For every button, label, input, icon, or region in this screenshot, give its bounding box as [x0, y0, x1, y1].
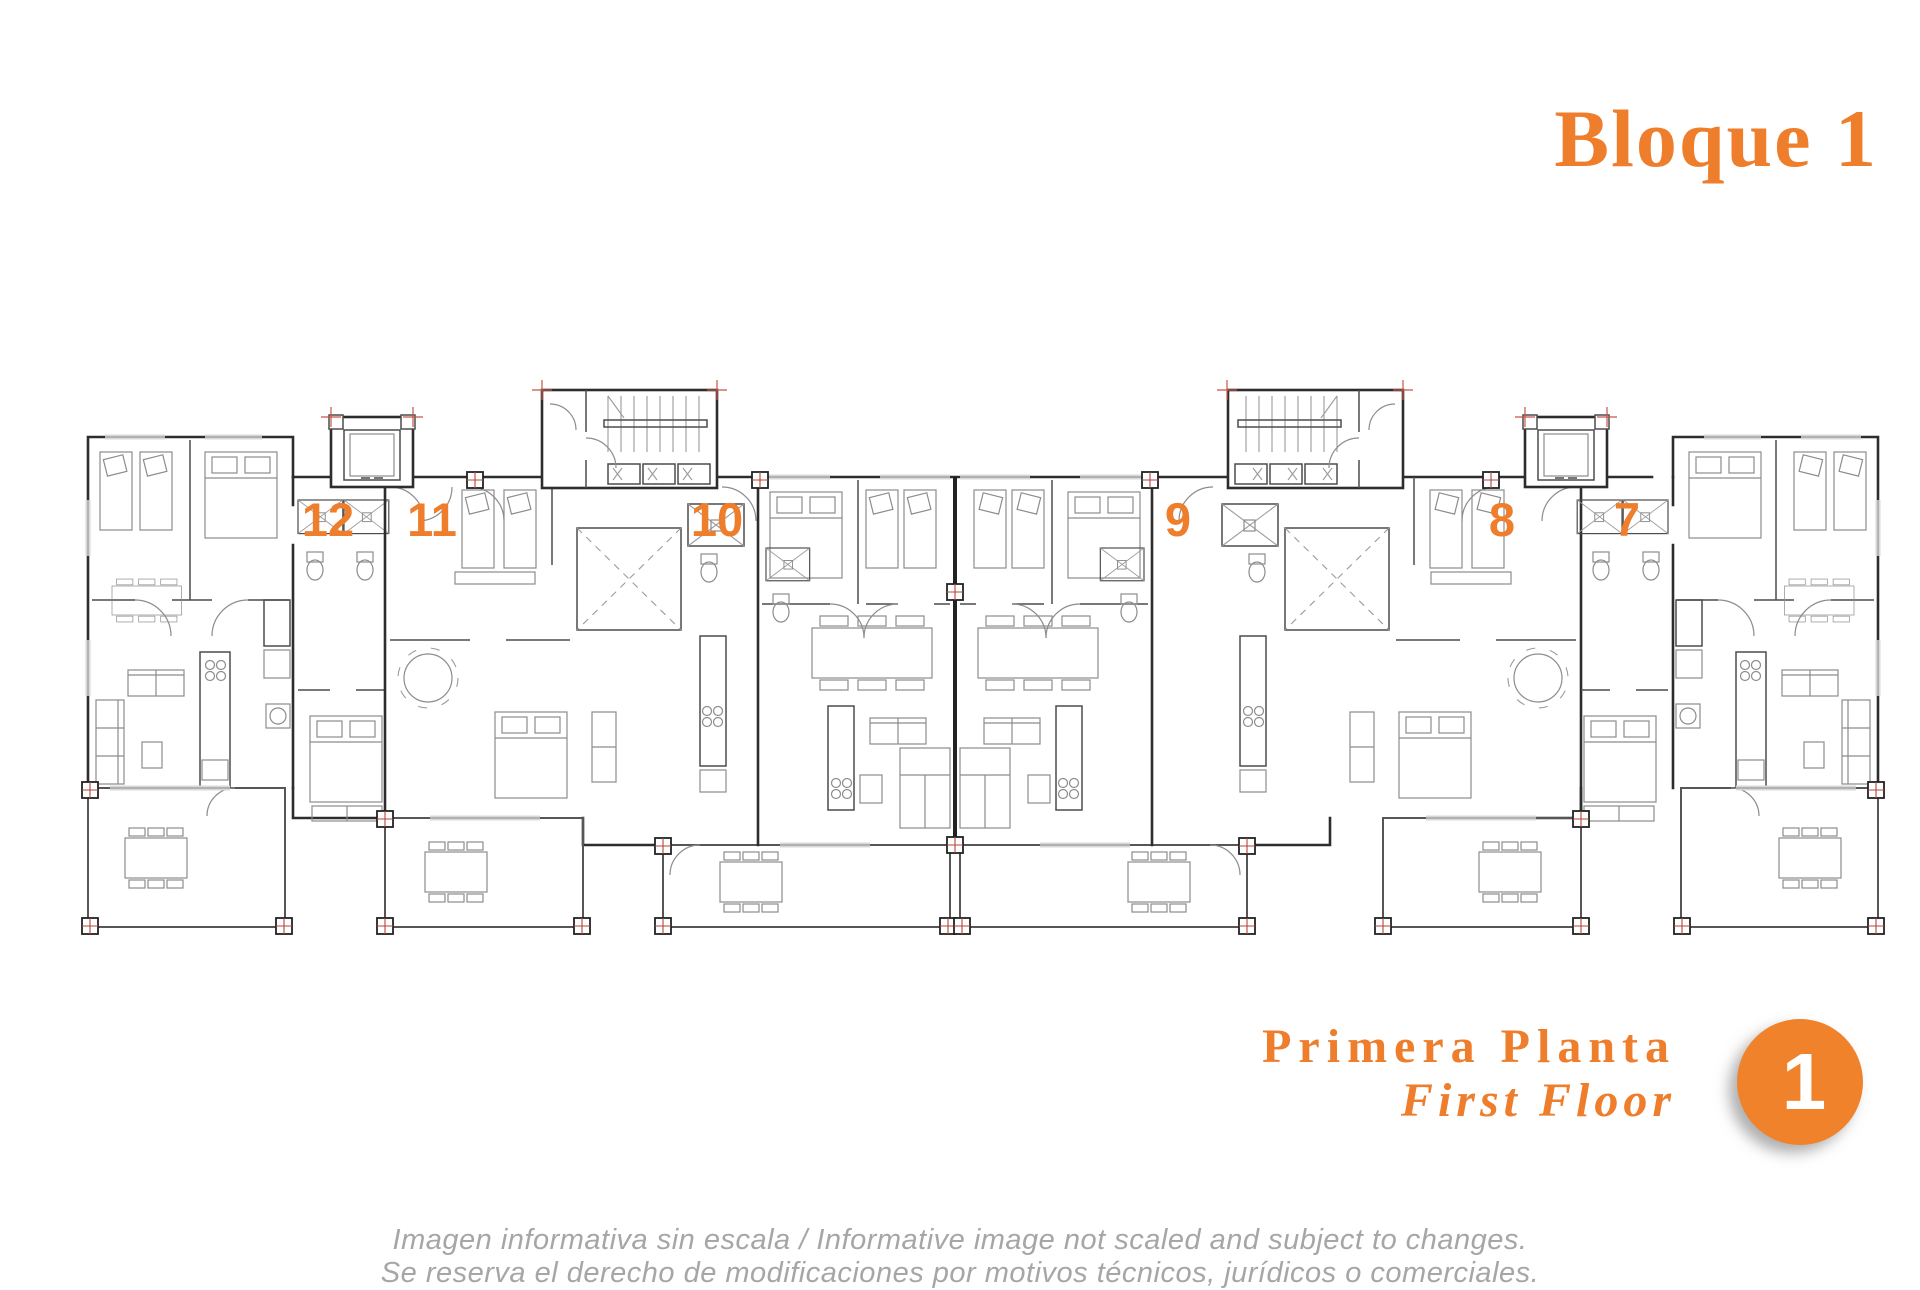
page: { "header": { "title": "Bloque 1" }, "pl… — [0, 0, 1920, 1280]
floor-label-es: Primera Planta — [1262, 1020, 1676, 1074]
floor-label-en: First Floor — [1262, 1074, 1676, 1128]
unit-label-8: 8 — [1489, 493, 1515, 546]
unit-label-9: 9 — [1165, 493, 1191, 546]
unit-label-10: 10 — [691, 493, 743, 546]
elevator-left — [329, 415, 415, 487]
building: 121110987 — [82, 380, 1884, 934]
terrace-tables — [125, 828, 1841, 912]
stair-core-left — [542, 390, 717, 488]
disclaimer-line-2: Se reserva el derecho de modificaciones … — [160, 1257, 1760, 1290]
terrace-band — [293, 788, 1581, 927]
unit-label-7: 7 — [1614, 493, 1640, 546]
disclaimer-line-1: Imagen informativa sin escala / Informat… — [160, 1224, 1760, 1257]
unit-label-12: 12 — [302, 493, 354, 546]
elevator-right — [1523, 415, 1609, 487]
unit-label-11: 11 — [407, 493, 457, 546]
floor-label: Primera Planta First Floor — [1262, 1020, 1676, 1128]
stair-core-right — [1228, 390, 1403, 488]
apartment-9 — [960, 477, 1240, 875]
page-title: Bloque 1 — [1554, 92, 1878, 186]
block-number-badge: 1 — [1737, 1019, 1863, 1145]
block-number: 1 — [1774, 1036, 1827, 1128]
disclaimer: Imagen informativa sin escala / Informat… — [160, 1224, 1760, 1290]
apartment-8 — [1222, 477, 1581, 927]
unit-labels: 121110987 — [302, 493, 1640, 546]
